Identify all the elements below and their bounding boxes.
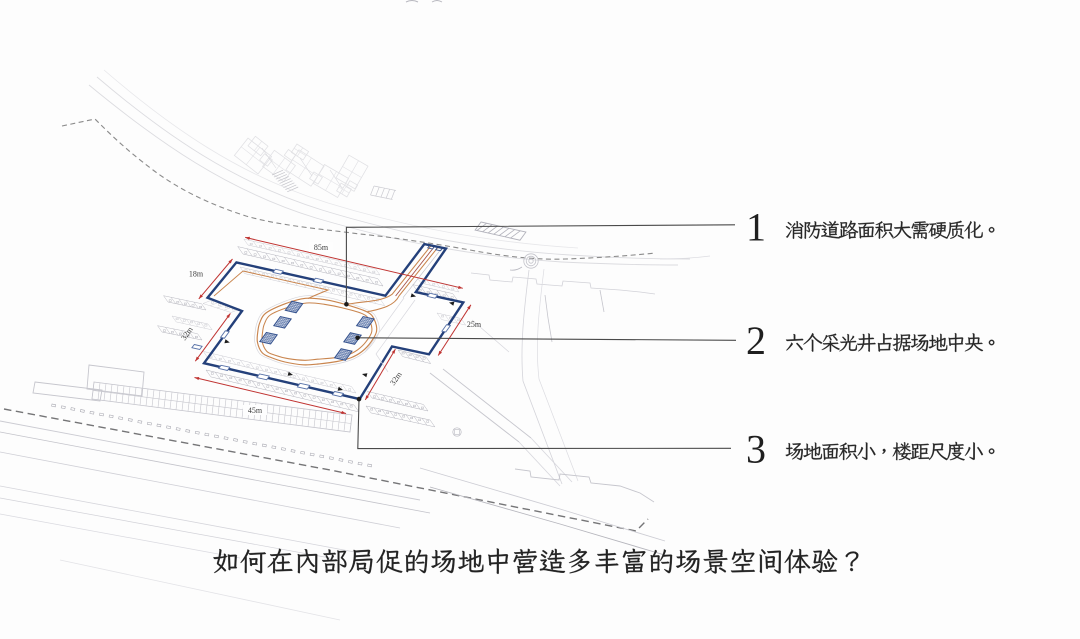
- svg-text:1: 1: [746, 205, 766, 250]
- svg-text:45m: 45m: [248, 406, 263, 415]
- svg-text:85m: 85m: [314, 243, 329, 252]
- svg-text:25m: 25m: [467, 320, 482, 329]
- svg-text:3: 3: [746, 426, 766, 471]
- svg-text:2: 2: [746, 318, 766, 363]
- svg-text:18m: 18m: [189, 270, 204, 279]
